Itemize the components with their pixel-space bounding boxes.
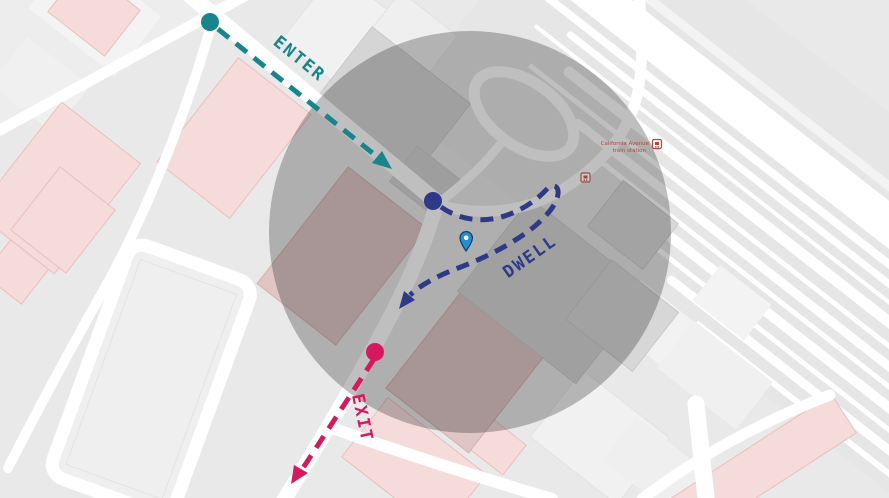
enter-start-dot[interactable] bbox=[201, 13, 219, 31]
train-station-icon-2[interactable] bbox=[581, 173, 590, 182]
geofence-circle bbox=[269, 31, 671, 433]
trajectory-map-figure: California Avenue train station ENTER DW… bbox=[0, 0, 889, 498]
station-name-line2: train station bbox=[613, 148, 647, 154]
train-station-icon[interactable] bbox=[653, 140, 662, 149]
dwell-start-dot[interactable] bbox=[424, 192, 442, 210]
exit-start-dot[interactable] bbox=[366, 343, 384, 361]
map-canvas[interactable]: California Avenue train station ENTER DW… bbox=[0, 0, 889, 498]
station-name-line1: California Avenue bbox=[601, 141, 650, 147]
